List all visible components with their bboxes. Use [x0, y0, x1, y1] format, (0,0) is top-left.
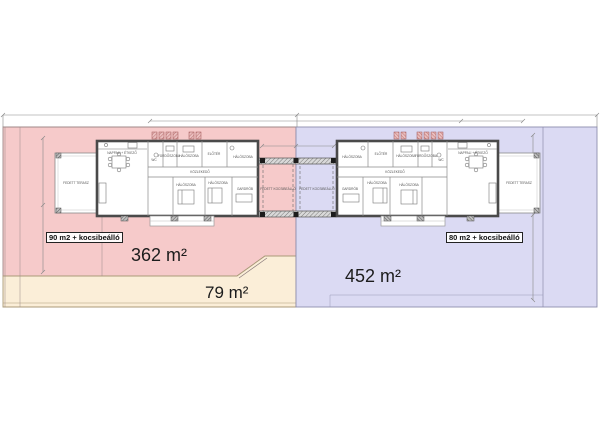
room-label: KÖZLEKEDŐ — [190, 169, 210, 174]
room-label: FEDETT TERASZ — [506, 181, 532, 185]
room-label: HÁLÓSZOBA — [342, 154, 362, 159]
room-label: WC — [438, 158, 444, 162]
room-label: HÁLÓSZOBA — [208, 180, 228, 185]
room-label: KÖZLEKEDŐ — [385, 169, 405, 174]
room-label: HÁLÓSZOBA — [176, 182, 196, 187]
plot-right-area-label: 452 m² — [345, 266, 401, 287]
site-plan-svg: NAPPALI + ÉTKEZŐ WC FÜRDŐSZOBA HÁLÓSZOBA… — [0, 0, 600, 424]
room-label: ELŐTÉR — [375, 151, 388, 156]
room-label: HÁLÓSZOBA — [179, 153, 199, 158]
room-label: HÁLÓSZOBA — [399, 182, 419, 187]
room-label: HÁLÓSZOBA — [233, 154, 253, 159]
room-label: NAPPALI + ÉTKEZŐ — [107, 150, 137, 155]
room-label: HÁLÓSZOBA — [396, 153, 416, 158]
room-label: FEDETT KOCSIBEÁLLÓ — [299, 186, 335, 191]
plot-left-area-label: 362 m² — [131, 245, 187, 266]
plot-left-front-area-label: 79 m² — [205, 283, 248, 303]
room-label: FÜRDŐSZOBA — [415, 153, 438, 158]
room-label: ELŐTÉR — [208, 151, 221, 156]
room-label: WC — [151, 158, 157, 162]
room-label: FEDETT TERASZ — [63, 181, 89, 185]
room-label: GARDRÓB — [342, 186, 358, 191]
site-plan-canvas: NAPPALI + ÉTKEZŐ WC FÜRDŐSZOBA HÁLÓSZOBA… — [0, 0, 600, 424]
room-label: HÁLÓSZOBA — [367, 180, 387, 185]
room-label: GARDRÓB — [237, 186, 253, 191]
room-label: FEDETT KOCSIBEÁLLÓ — [260, 186, 296, 191]
room-label: NAPPALI + ÉTKEZŐ — [458, 150, 488, 155]
plot-left-badge: 90 m2 + kocsibeálló — [46, 232, 123, 243]
room-label: FÜRDŐSZOBA — [158, 153, 181, 158]
plot-right-badge: 80 m2 + kocsibeálló — [446, 232, 523, 243]
